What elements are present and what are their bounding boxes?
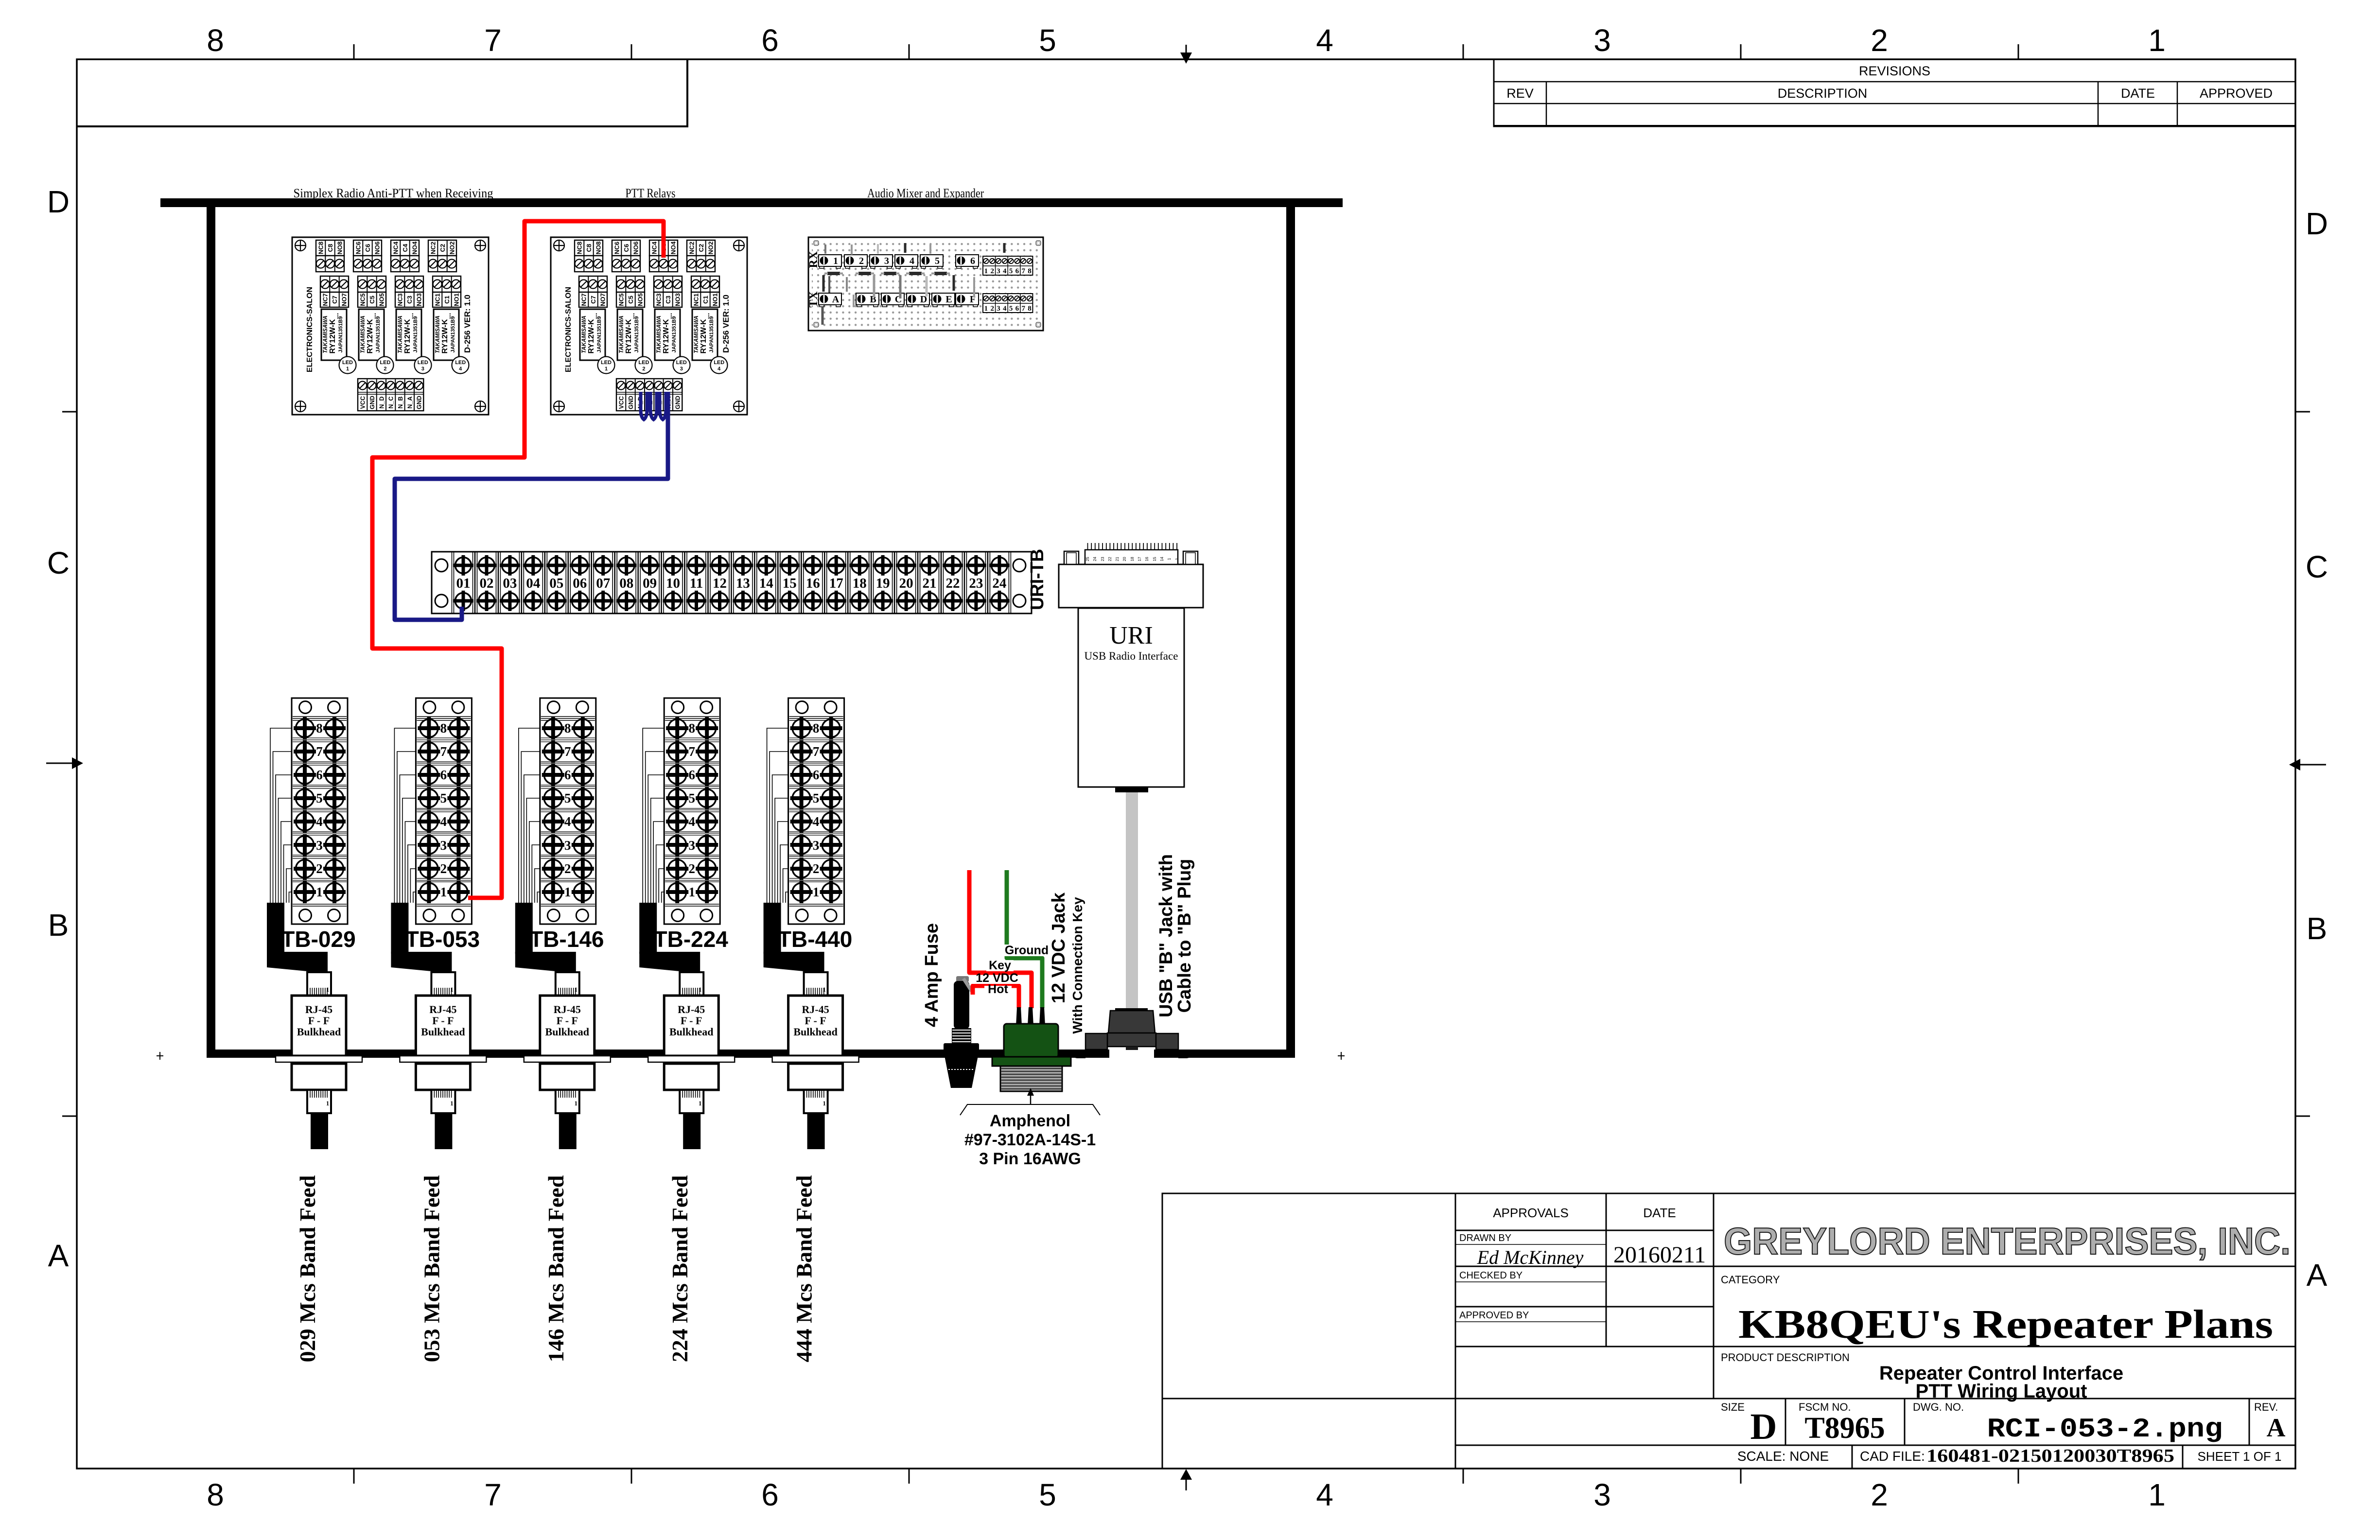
- svg-text:GND: GND: [416, 396, 423, 409]
- svg-text:TB-053: TB-053: [405, 927, 480, 952]
- svg-text:TAKAMISAWA: TAKAMISAWA: [360, 315, 366, 353]
- svg-text:CAD FILE:: CAD FILE:: [1860, 1449, 1925, 1464]
- svg-text:A: A: [48, 1238, 69, 1273]
- svg-text:Bulkhead: Bulkhead: [421, 1026, 465, 1038]
- svg-text:JAPAN1351B9: JAPAN1351B9: [413, 316, 419, 352]
- svg-text:06: 06: [573, 576, 587, 591]
- svg-text:14: 14: [1160, 557, 1164, 561]
- svg-text:4: 4: [440, 814, 447, 829]
- svg-text:ELECTRONICS-SALON: ELECTRONICS-SALON: [306, 287, 314, 372]
- svg-text:TB-146: TB-146: [529, 927, 604, 952]
- svg-text:REVISIONS: REVISIONS: [1859, 64, 1930, 78]
- svg-text:7: 7: [1021, 305, 1025, 313]
- svg-text:DATE: DATE: [1643, 1206, 1676, 1220]
- svg-text:C5: C5: [627, 296, 634, 304]
- svg-text:B: B: [48, 908, 69, 943]
- svg-text:#97-3102A-14S-1: #97-3102A-14S-1: [964, 1131, 1096, 1149]
- svg-text:D-256 VER: 1.0: D-256 VER: 1.0: [463, 295, 472, 353]
- svg-text:5: 5: [1009, 305, 1013, 313]
- svg-text:TB-224: TB-224: [654, 927, 729, 952]
- svg-text:APPROVED BY: APPROVED BY: [1459, 1310, 1529, 1321]
- svg-text:T8965: T8965: [1804, 1412, 1885, 1445]
- svg-text:F - F: F - F: [681, 1015, 702, 1027]
- svg-text:444 Mcs Band Feed: 444 Mcs Band Feed: [792, 1175, 817, 1362]
- svg-text:1: 1: [2148, 1477, 2166, 1512]
- svg-text:3: 3: [813, 838, 820, 853]
- svg-text:F - F: F - F: [432, 1015, 454, 1027]
- svg-text:PTT Relays: PTT Relays: [626, 186, 676, 200]
- svg-text:C: C: [47, 545, 70, 580]
- svg-text:6: 6: [970, 256, 975, 266]
- svg-text:8: 8: [1028, 305, 1032, 313]
- svg-text:3: 3: [1593, 23, 1611, 58]
- svg-text:Amphenol: Amphenol: [990, 1112, 1070, 1130]
- svg-text:3: 3: [421, 366, 424, 372]
- svg-text:NC3: NC3: [397, 293, 404, 306]
- svg-text:224 Mcs Band Feed: 224 Mcs Band Feed: [667, 1175, 692, 1362]
- svg-text:RJ-45: RJ-45: [554, 1003, 581, 1015]
- svg-text:1: 1: [450, 986, 454, 993]
- svg-text:Ed McKinney: Ed McKinney: [1477, 1246, 1584, 1268]
- svg-text:1: 1: [699, 986, 702, 993]
- svg-text:JAPAN1351B9: JAPAN1351B9: [338, 316, 344, 352]
- svg-text:RJ-45: RJ-45: [802, 1003, 829, 1015]
- svg-text:2: 2: [1871, 1477, 1888, 1512]
- svg-text:NC4: NC4: [651, 241, 658, 254]
- svg-text:NO7: NO7: [599, 293, 606, 306]
- svg-text:13: 13: [736, 576, 750, 591]
- svg-text:C1: C1: [443, 296, 451, 304]
- svg-text:2: 2: [990, 267, 994, 275]
- svg-text:NC8: NC8: [317, 242, 325, 254]
- svg-text:C3: C3: [665, 296, 672, 304]
- svg-text:LED: LED: [601, 360, 612, 366]
- svg-text:2: 2: [642, 366, 645, 372]
- svg-text:PTT Wiring Layout: PTT Wiring Layout: [1916, 1381, 2087, 1402]
- svg-text:1: 1: [346, 366, 349, 372]
- svg-text:6: 6: [688, 768, 695, 782]
- svg-text:NC3: NC3: [655, 293, 663, 306]
- svg-text:RY12W-K: RY12W-K: [403, 319, 412, 354]
- svg-text:SHEET 1 OF 1: SHEET 1 OF 1: [2198, 1449, 2282, 1464]
- svg-text:C1: C1: [702, 296, 709, 304]
- svg-text:TAKAMISAWA: TAKAMISAWA: [656, 315, 662, 353]
- svg-text:12 VDC Jack: 12 VDC Jack: [1049, 892, 1069, 1003]
- svg-text:6: 6: [813, 768, 820, 782]
- svg-text:5: 5: [1039, 23, 1056, 58]
- svg-text:B: B: [2307, 911, 2327, 946]
- svg-text:NC7: NC7: [580, 293, 588, 306]
- svg-text:RY12W-K: RY12W-K: [700, 319, 708, 354]
- svg-text:1: 1: [822, 986, 826, 993]
- svg-text:RY12W-K: RY12W-K: [366, 319, 374, 354]
- svg-text:Bulkhead: Bulkhead: [793, 1026, 838, 1038]
- svg-text:NO8: NO8: [336, 242, 343, 255]
- svg-text:C3: C3: [406, 296, 413, 304]
- svg-text:2: 2: [813, 861, 820, 876]
- svg-text:1: 1: [316, 885, 323, 899]
- svg-text:NO6: NO6: [632, 242, 639, 255]
- svg-text:TB-029: TB-029: [281, 927, 355, 952]
- svg-text:DESCRIPTION: DESCRIPTION: [1778, 86, 1868, 101]
- svg-text:NO3: NO3: [674, 293, 681, 306]
- svg-text:With Connection Key: With Connection Key: [1070, 897, 1085, 1034]
- svg-text:4: 4: [1003, 267, 1007, 275]
- svg-text:21: 21: [1115, 557, 1120, 561]
- svg-text:NO5: NO5: [636, 293, 644, 306]
- svg-text:1: 1: [688, 885, 695, 899]
- svg-text:NC6: NC6: [355, 242, 362, 254]
- svg-text:C6: C6: [623, 244, 630, 252]
- svg-text:4: 4: [813, 814, 820, 829]
- svg-text:029 Mcs Band Feed: 029 Mcs Band Feed: [295, 1175, 320, 1362]
- svg-text:A: A: [832, 294, 840, 305]
- svg-text:E: E: [945, 294, 952, 305]
- svg-text:NO4: NO4: [411, 241, 418, 255]
- svg-text:LED: LED: [455, 360, 466, 366]
- svg-text:16: 16: [806, 576, 820, 591]
- svg-text:1: 1: [1175, 558, 1179, 560]
- svg-text:4: 4: [459, 366, 462, 372]
- svg-text:15: 15: [783, 576, 797, 591]
- svg-text:RJ-45: RJ-45: [305, 1003, 332, 1015]
- svg-text:APPROVALS: APPROVALS: [1493, 1206, 1569, 1220]
- svg-text:URI-TB: URI-TB: [1027, 549, 1048, 610]
- svg-text:LED: LED: [638, 360, 649, 366]
- svg-text:8: 8: [1028, 267, 1032, 275]
- svg-text:RY12W-K: RY12W-K: [662, 319, 670, 354]
- svg-text:2: 2: [1871, 23, 1888, 58]
- svg-text:1: 1: [822, 1100, 826, 1107]
- svg-text:23: 23: [969, 576, 983, 591]
- svg-text:TB-440: TB-440: [778, 927, 852, 952]
- svg-text:6: 6: [1015, 305, 1019, 313]
- svg-text:CHECKED BY: CHECKED BY: [1459, 1270, 1522, 1281]
- svg-text:12: 12: [713, 576, 727, 591]
- svg-text:3 Pin 16AWG: 3 Pin 16AWG: [979, 1150, 1081, 1168]
- svg-text:NC2: NC2: [688, 242, 696, 254]
- svg-text:4: 4: [1003, 305, 1007, 313]
- svg-text:RJ-45: RJ-45: [429, 1003, 456, 1015]
- svg-text:NC5: NC5: [359, 293, 367, 306]
- svg-text:JAPAN1351B9: JAPAN1351B9: [634, 316, 640, 352]
- svg-text:N_D: N_D: [378, 396, 385, 408]
- svg-text:1: 1: [2148, 23, 2166, 58]
- svg-text:20160211: 20160211: [1613, 1242, 1706, 1268]
- svg-text:NO7: NO7: [340, 293, 348, 306]
- svg-text:D-256 VER: 1.0: D-256 VER: 1.0: [721, 295, 731, 353]
- svg-text:LED: LED: [342, 360, 353, 366]
- svg-text:VCC: VCC: [360, 396, 367, 409]
- svg-text:16: 16: [1145, 557, 1149, 561]
- svg-text:4: 4: [910, 256, 914, 266]
- svg-text:Bulkhead: Bulkhead: [297, 1026, 341, 1038]
- svg-text:2: 2: [859, 256, 864, 266]
- svg-text:1: 1: [326, 986, 330, 993]
- svg-text:NC8: NC8: [576, 242, 583, 254]
- svg-text:1: 1: [984, 267, 988, 275]
- svg-text:NO2: NO2: [448, 242, 455, 255]
- svg-text:18: 18: [1130, 557, 1135, 561]
- svg-text:JAPAN1351B9: JAPAN1351B9: [671, 316, 677, 352]
- svg-text:CATEGORY: CATEGORY: [1721, 1274, 1780, 1286]
- svg-text:DRAWN BY: DRAWN BY: [1459, 1233, 1511, 1243]
- svg-text:14: 14: [759, 576, 773, 591]
- svg-text:Simplex Radio Anti-PTT when Re: Simplex Radio Anti-PTT when Receiving: [294, 186, 493, 200]
- svg-text:C4: C4: [402, 244, 409, 252]
- svg-text:KB8QEU's Repeater Plans: KB8QEU's Repeater Plans: [1738, 1302, 2273, 1347]
- svg-text:20: 20: [1122, 557, 1127, 561]
- svg-text:7: 7: [316, 744, 323, 759]
- svg-text:25: 25: [1085, 557, 1090, 561]
- svg-text:20: 20: [899, 576, 913, 591]
- svg-text:C5: C5: [368, 296, 376, 304]
- svg-text:NC4: NC4: [392, 241, 400, 254]
- svg-text:NO6: NO6: [373, 242, 381, 255]
- svg-text:1: 1: [575, 1100, 578, 1107]
- svg-text:6: 6: [761, 1477, 779, 1512]
- svg-text:RJ-45: RJ-45: [678, 1003, 705, 1015]
- svg-text:1: 1: [984, 305, 988, 313]
- svg-text:5: 5: [440, 791, 447, 805]
- svg-text:3: 3: [316, 838, 323, 853]
- svg-text:4: 4: [688, 814, 695, 829]
- svg-text:NC7: NC7: [322, 293, 329, 306]
- svg-text:LED: LED: [380, 360, 390, 366]
- svg-text:3: 3: [440, 838, 447, 853]
- svg-text:TAKAMISAWA: TAKAMISAWA: [323, 315, 329, 353]
- svg-text:NC2: NC2: [430, 242, 437, 254]
- svg-text:7: 7: [484, 1477, 502, 1512]
- svg-text:RY12W-K: RY12W-K: [329, 319, 337, 354]
- svg-text:2: 2: [990, 305, 994, 313]
- svg-text:24: 24: [1093, 557, 1097, 561]
- svg-text:3: 3: [997, 305, 1000, 313]
- svg-text:NC1: NC1: [434, 293, 441, 306]
- svg-text:TAKAMISAWA: TAKAMISAWA: [619, 315, 625, 353]
- svg-text:LED: LED: [676, 360, 687, 366]
- svg-text:8: 8: [688, 721, 695, 735]
- svg-text:03: 03: [503, 576, 517, 591]
- svg-text:PRODUCT DESCRIPTION: PRODUCT DESCRIPTION: [1721, 1351, 1850, 1364]
- svg-text:4: 4: [1316, 23, 1333, 58]
- svg-text:8: 8: [316, 721, 323, 735]
- svg-text:4: 4: [717, 366, 721, 372]
- svg-text:VCC: VCC: [618, 396, 625, 409]
- svg-text:1: 1: [833, 256, 838, 266]
- svg-text:C8: C8: [585, 244, 593, 252]
- svg-text:TAKAMISAWA: TAKAMISAWA: [435, 315, 441, 353]
- svg-text:C7: C7: [331, 296, 338, 304]
- svg-text:2: 2: [384, 366, 386, 372]
- svg-text:07: 07: [596, 576, 610, 591]
- svg-text:Hot: Hot: [988, 982, 1008, 996]
- svg-text:6: 6: [564, 768, 571, 782]
- svg-text:LED: LED: [418, 360, 428, 366]
- svg-text:JAPAN1351B9: JAPAN1351B9: [709, 316, 715, 352]
- svg-text:NO4: NO4: [669, 241, 677, 255]
- svg-text:5: 5: [316, 791, 323, 805]
- svg-text:6: 6: [761, 23, 779, 58]
- svg-text:F - F: F - F: [557, 1015, 578, 1027]
- svg-text:SIZE: SIZE: [1721, 1401, 1745, 1413]
- svg-text:D: D: [2306, 206, 2328, 241]
- svg-text:7: 7: [564, 744, 571, 759]
- svg-text:JAPAN1351B9: JAPAN1351B9: [450, 316, 456, 352]
- svg-text:NO8: NO8: [595, 242, 602, 255]
- svg-text:3: 3: [1593, 1477, 1611, 1512]
- svg-text:4: 4: [1316, 1477, 1333, 1512]
- svg-text:Bulkhead: Bulkhead: [669, 1026, 714, 1038]
- svg-text:053 Mcs Band Feed: 053 Mcs Band Feed: [419, 1175, 444, 1362]
- svg-text:11: 11: [690, 576, 703, 591]
- svg-text:LED: LED: [714, 360, 724, 366]
- svg-text:NO1: NO1: [453, 293, 460, 306]
- svg-text:7: 7: [813, 744, 820, 759]
- svg-text:6: 6: [316, 768, 323, 782]
- svg-text:1: 1: [605, 366, 608, 372]
- svg-text:6: 6: [1015, 267, 1019, 275]
- svg-text:8: 8: [440, 721, 447, 735]
- svg-text:C6: C6: [364, 244, 371, 252]
- svg-text:5: 5: [813, 791, 820, 805]
- svg-text:N_B: N_B: [397, 396, 404, 408]
- svg-text:7: 7: [440, 744, 447, 759]
- svg-text:05: 05: [549, 576, 563, 591]
- svg-text:REV: REV: [1506, 86, 1534, 101]
- svg-text:2: 2: [564, 861, 571, 876]
- svg-text:5: 5: [564, 791, 571, 805]
- svg-text:DWG. NO.: DWG. NO.: [1913, 1401, 1964, 1413]
- svg-text:19: 19: [876, 576, 890, 591]
- svg-text:C2: C2: [698, 244, 705, 252]
- svg-text:7: 7: [688, 744, 695, 759]
- svg-text:Audio Mixer and Expander: Audio Mixer and Expander: [867, 186, 984, 200]
- svg-text:4 Amp Fuse: 4 Amp Fuse: [922, 923, 942, 1027]
- svg-text:4: 4: [316, 814, 323, 829]
- svg-text:2: 2: [440, 861, 447, 876]
- svg-text:NC1: NC1: [693, 293, 700, 306]
- svg-text:RY12W-K: RY12W-K: [441, 319, 449, 354]
- svg-text:17: 17: [1137, 557, 1142, 561]
- svg-text:A: A: [2267, 1413, 2286, 1442]
- svg-text:3: 3: [688, 838, 695, 853]
- svg-text:Cable to "B" Plug: Cable to "B" Plug: [1174, 859, 1195, 1013]
- svg-text:1: 1: [326, 1100, 330, 1107]
- svg-text:146 Mcs Band Feed: 146 Mcs Band Feed: [543, 1175, 568, 1362]
- svg-text:09: 09: [643, 576, 657, 591]
- svg-text:18: 18: [853, 576, 867, 591]
- svg-text:TAKAMISAWA: TAKAMISAWA: [581, 315, 587, 353]
- svg-text:GND: GND: [628, 396, 634, 409]
- svg-text:TAKAMISAWA: TAKAMISAWA: [694, 315, 700, 353]
- svg-text:2: 2: [688, 861, 695, 876]
- svg-text:24: 24: [992, 576, 1006, 591]
- svg-text:1: 1: [440, 885, 447, 899]
- svg-text:1: 1: [450, 1100, 454, 1107]
- svg-text:1: 1: [813, 885, 820, 899]
- svg-text:NC5: NC5: [618, 293, 625, 306]
- svg-text:D: D: [47, 184, 70, 219]
- svg-text:7: 7: [1021, 267, 1025, 275]
- svg-text:USB Radio Interface: USB Radio Interface: [1085, 650, 1178, 662]
- svg-text:C: C: [2306, 549, 2328, 584]
- svg-text:15: 15: [1153, 557, 1157, 561]
- svg-text:3: 3: [884, 256, 889, 266]
- svg-text:8: 8: [564, 721, 571, 735]
- svg-text:17: 17: [829, 576, 843, 591]
- svg-text:C8: C8: [327, 244, 334, 252]
- svg-text:GND: GND: [369, 396, 376, 409]
- svg-text:Ground: Ground: [1005, 944, 1049, 957]
- svg-text:Bulkhead: Bulkhead: [545, 1026, 590, 1038]
- svg-text:NO2: NO2: [707, 242, 714, 255]
- svg-text:RY12W-K: RY12W-K: [587, 319, 595, 354]
- svg-text:1: 1: [1167, 558, 1172, 560]
- svg-text:DATE: DATE: [2121, 86, 2155, 101]
- svg-text:JAPAN1351B9: JAPAN1351B9: [375, 316, 381, 352]
- svg-text:TAKAMISAWA: TAKAMISAWA: [398, 315, 403, 353]
- svg-text:01: 01: [456, 576, 471, 591]
- svg-text:5: 5: [1039, 1477, 1056, 1512]
- svg-text:10: 10: [666, 576, 680, 591]
- svg-text:02: 02: [480, 576, 494, 591]
- svg-text:3: 3: [997, 267, 1000, 275]
- svg-text:3: 3: [680, 366, 683, 372]
- svg-text:USB "B" Jack with: USB "B" Jack with: [1156, 854, 1176, 1017]
- svg-text:NO1: NO1: [711, 293, 718, 306]
- svg-text:21: 21: [923, 576, 937, 591]
- svg-text:3: 3: [564, 838, 571, 853]
- svg-text:04: 04: [526, 576, 540, 591]
- svg-text:8: 8: [207, 23, 224, 58]
- svg-text:8: 8: [207, 1477, 224, 1512]
- svg-text:1: 1: [575, 986, 578, 993]
- svg-text:22: 22: [946, 576, 960, 591]
- svg-text:08: 08: [619, 576, 633, 591]
- svg-text:RY12W-K: RY12W-K: [625, 319, 633, 354]
- svg-text:1: 1: [564, 885, 571, 899]
- svg-text:4: 4: [564, 814, 571, 829]
- svg-text:2: 2: [316, 861, 323, 876]
- svg-text:N_A: N_A: [406, 396, 413, 408]
- svg-text:F - F: F - F: [308, 1015, 330, 1027]
- svg-text:5: 5: [1009, 267, 1013, 275]
- svg-text:8: 8: [813, 721, 820, 735]
- svg-text:ELECTRONICS-SALON: ELECTRONICS-SALON: [564, 287, 573, 372]
- svg-text:NO3: NO3: [415, 293, 422, 306]
- svg-text:160481-02150120030T8965: 160481-02150120030T8965: [1926, 1446, 2174, 1466]
- svg-text:GND: GND: [675, 396, 682, 409]
- svg-text:5: 5: [688, 791, 695, 805]
- svg-text:6: 6: [440, 768, 447, 782]
- svg-text:NO5: NO5: [378, 293, 385, 306]
- svg-text:JAPAN1351B9: JAPAN1351B9: [596, 316, 602, 352]
- svg-text:APPROVED: APPROVED: [2200, 86, 2273, 101]
- svg-text:7: 7: [484, 23, 502, 58]
- svg-text:A: A: [2307, 1258, 2327, 1293]
- svg-text:NC6: NC6: [613, 242, 621, 254]
- svg-text:22: 22: [1108, 557, 1112, 561]
- svg-text:5: 5: [935, 256, 940, 266]
- svg-text:C7: C7: [590, 296, 597, 304]
- svg-text:D: D: [1750, 1406, 1777, 1447]
- svg-text:F - F: F - F: [805, 1015, 826, 1027]
- svg-text:RCI-053-2.png: RCI-053-2.png: [1987, 1414, 2223, 1445]
- svg-text:1: 1: [699, 1100, 702, 1107]
- svg-text:N_C: N_C: [388, 396, 395, 408]
- svg-text:Key: Key: [989, 959, 1011, 972]
